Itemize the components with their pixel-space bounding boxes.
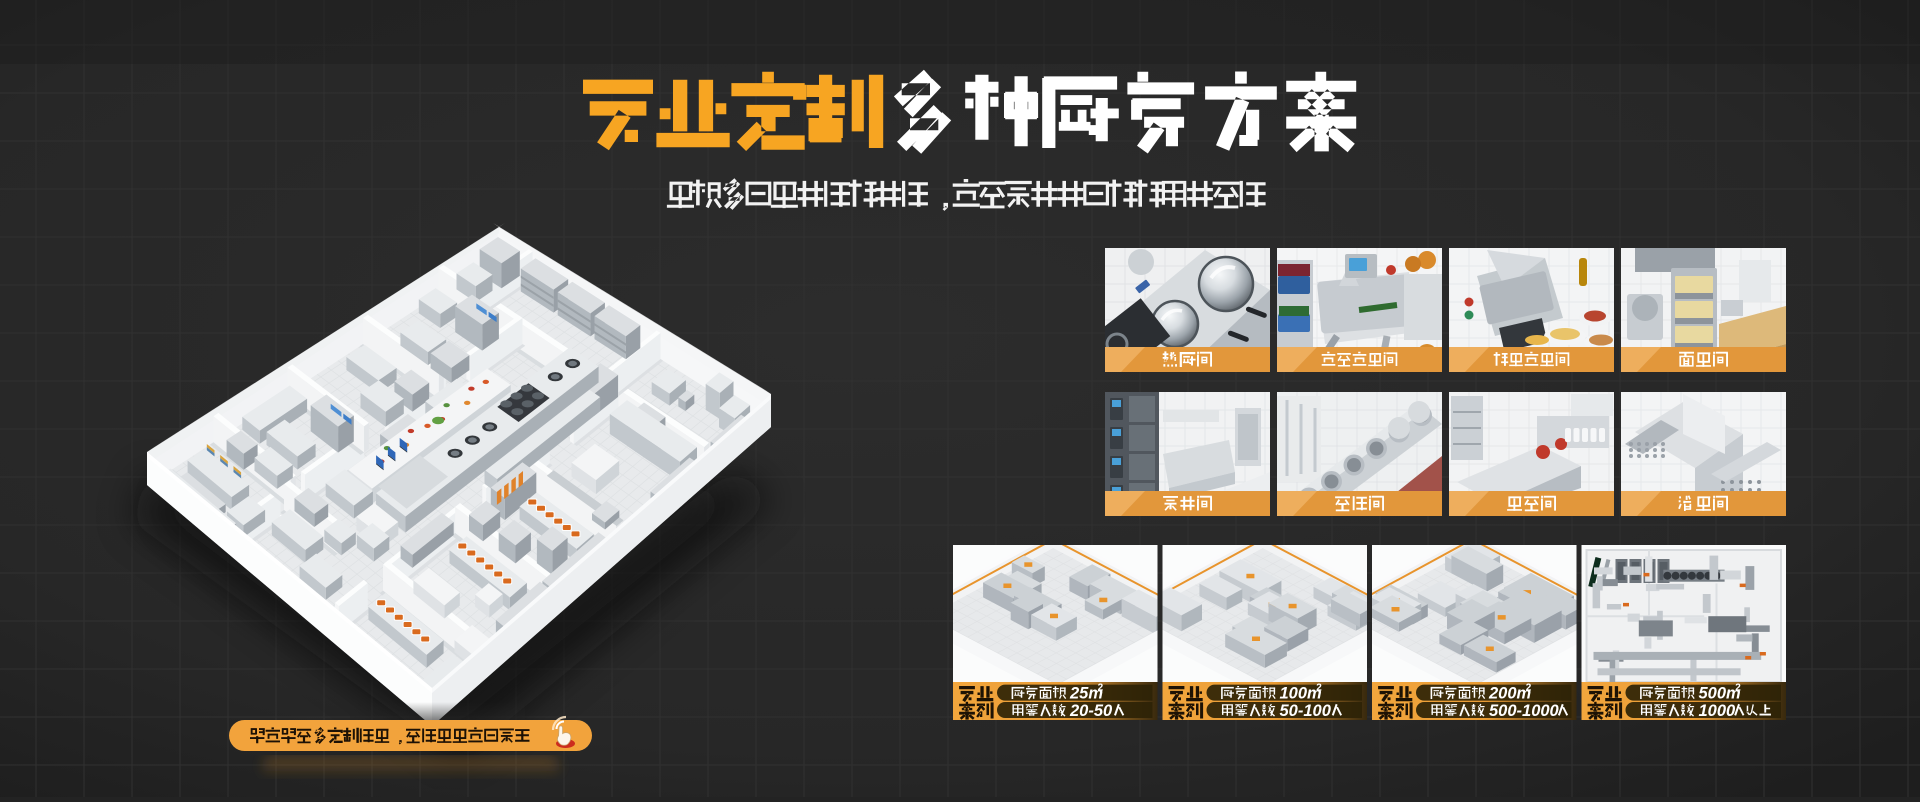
- svg-text:50-100: 50-100: [1280, 702, 1332, 720]
- svg-text:500-1000: 500-1000: [1489, 702, 1560, 720]
- svg-text:2: 2: [1098, 683, 1104, 694]
- svg-text:20-50: 20-50: [1069, 702, 1113, 720]
- svg-text:2: 2: [1316, 683, 1322, 694]
- svg-text:2: 2: [1735, 683, 1741, 694]
- svg-text:1000: 1000: [1699, 702, 1737, 720]
- svg-text:200m: 200m: [1488, 685, 1531, 703]
- svg-text:2: 2: [1526, 683, 1532, 694]
